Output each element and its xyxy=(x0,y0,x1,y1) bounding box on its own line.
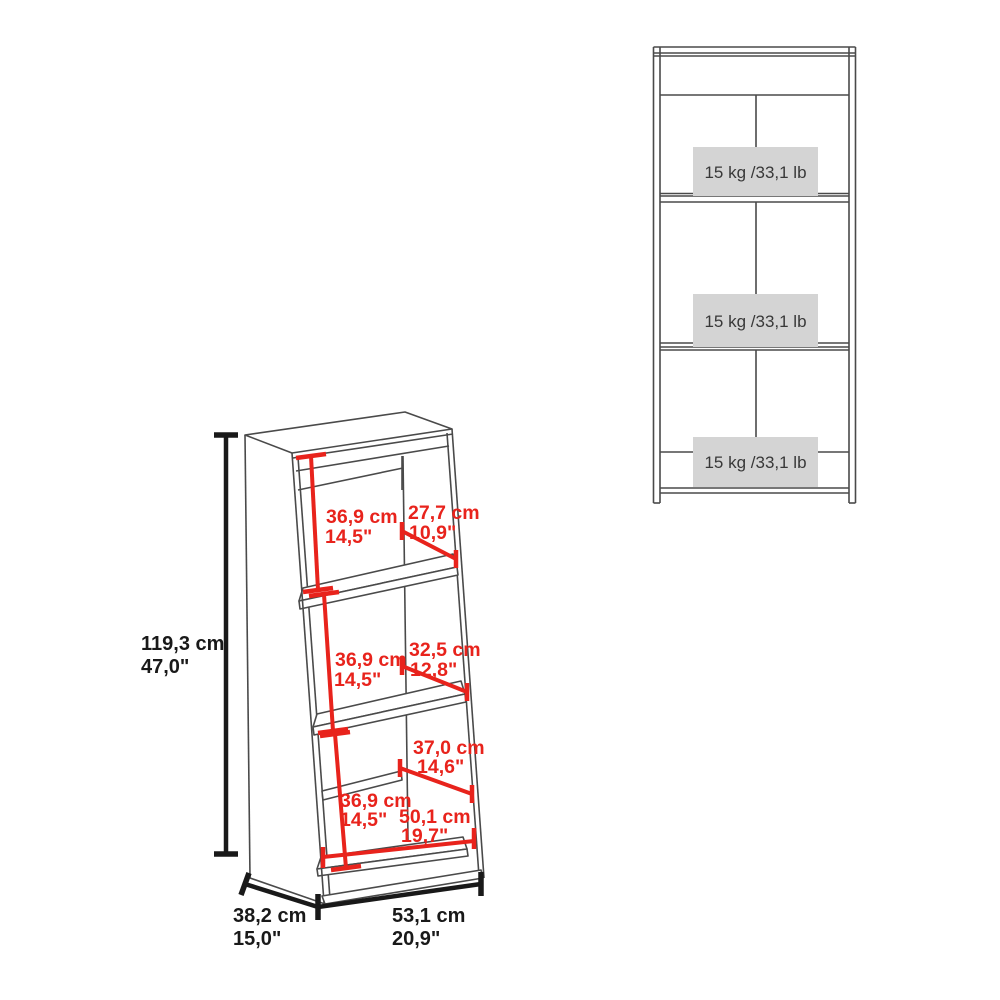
dim-comp1-height-in: 14,5" xyxy=(325,526,372,548)
dim-overall-height-cm: 119,3 cm xyxy=(141,633,224,655)
front-frame xyxy=(654,47,856,503)
top-panel xyxy=(245,412,452,453)
dim-overall-width-cm: 53,1 cm xyxy=(392,905,465,927)
dim-comp1-depth-cm: 27,7 cm xyxy=(408,502,480,524)
bookcase-dimension-diagram: 36,9 cm 14,5" 27,7 cm 10,9" 36,9 cm 14,5… xyxy=(0,0,1000,1000)
front-view: 15 kg /33,1 lb 15 kg /33,1 lb 15 kg /33,… xyxy=(654,47,856,503)
dim-comp2-height-in: 14,5" xyxy=(334,669,381,691)
dim-overall-height: 119,3 cm 47,0" xyxy=(141,435,238,854)
capacity-label-3: 15 kg /33,1 lb xyxy=(704,453,806,472)
dim-comp2-depth-in: 12,8" xyxy=(410,659,457,681)
dim-comp2-height-cm: 36,9 cm xyxy=(335,649,407,671)
dim-overall-depth: 38,2 cm 15,0" xyxy=(233,873,318,950)
dim-comp3-height-in: 14,5" xyxy=(340,809,387,831)
dim-comp3-width-in: 19,7" xyxy=(401,825,448,847)
dim-overall-depth-in: 15,0" xyxy=(233,928,281,950)
furniture-dimension-sheet: 36,9 cm 14,5" 27,7 cm 10,9" 36,9 cm 14,5… xyxy=(0,0,1000,1000)
dim-overall-height-in: 47,0" xyxy=(141,656,189,678)
dim-overall-width-in: 20,9" xyxy=(392,928,440,950)
dim-comp1-height-cm: 36,9 cm xyxy=(326,506,398,528)
dim-comp3-depth-in: 14,6" xyxy=(417,756,464,778)
capacity-label-1: 15 kg /33,1 lb xyxy=(704,163,806,182)
capacity-label-2: 15 kg /33,1 lb xyxy=(704,312,806,331)
front-left-slant-edge xyxy=(292,453,324,903)
dim-comp1-depth-in: 10,9" xyxy=(409,522,456,544)
inner-dimensions: 36,9 cm 14,5" 27,7 cm 10,9" 36,9 cm 14,5… xyxy=(296,454,485,870)
dim-overall-depth-cm: 38,2 cm xyxy=(233,905,306,927)
perspective-view: 36,9 cm 14,5" 27,7 cm 10,9" 36,9 cm 14,5… xyxy=(141,412,485,950)
dim-comp2-depth-cm: 32,5 cm xyxy=(409,639,481,661)
